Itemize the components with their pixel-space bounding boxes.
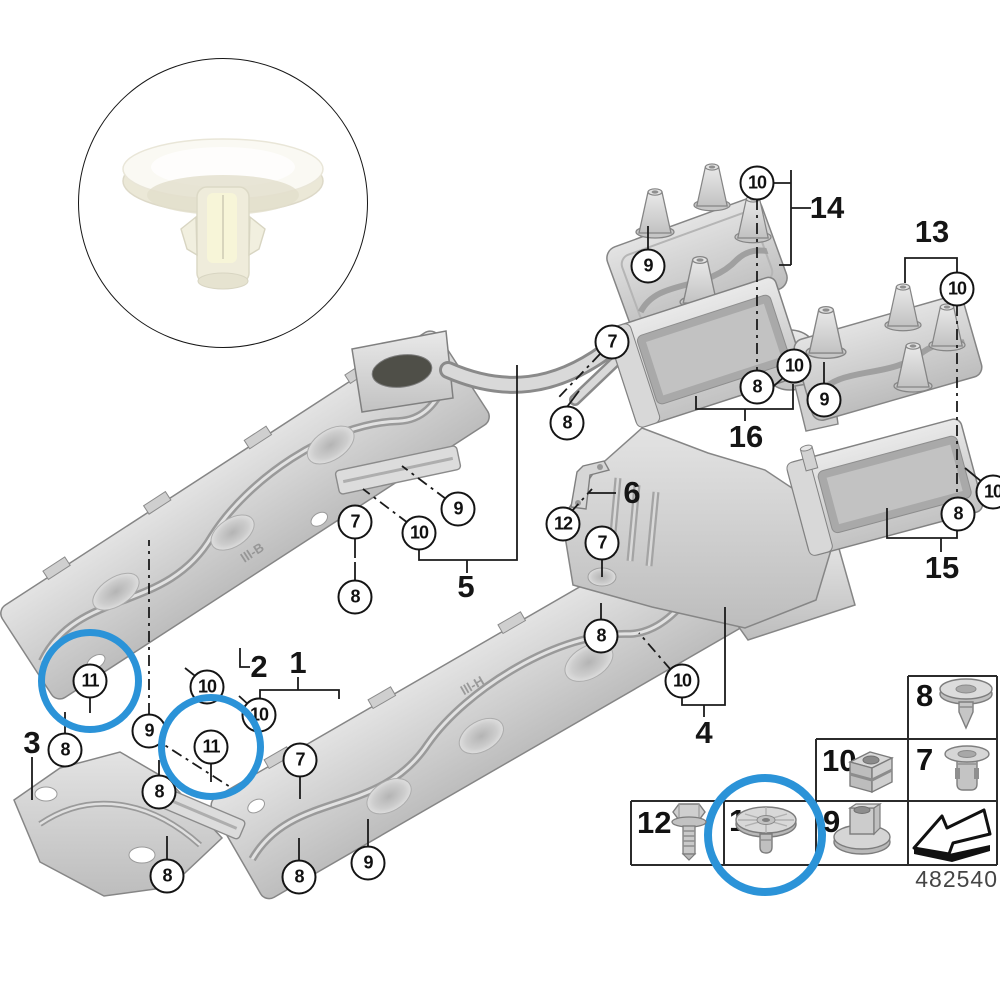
part-label-16: 16 <box>729 419 763 455</box>
highlight-ring <box>38 629 142 733</box>
callout-8: 8 <box>584 619 619 654</box>
part-label-13: 13 <box>915 214 949 250</box>
callout-8: 8 <box>48 733 83 768</box>
callout-10: 10 <box>777 349 812 384</box>
callout-10: 10 <box>976 475 1000 510</box>
callout-10: 10 <box>940 272 975 307</box>
callout-9: 9 <box>807 383 842 418</box>
callout-9: 9 <box>351 846 386 881</box>
legend-num-7: 7 <box>916 742 933 778</box>
part-label-5: 5 <box>457 569 474 605</box>
callout-8: 8 <box>550 406 585 441</box>
callout-7: 7 <box>595 325 630 360</box>
part-label-1: 1 <box>289 645 306 681</box>
cage-nut-icon <box>842 744 900 798</box>
callout-8: 8 <box>282 860 317 895</box>
expanding-rivet-icon <box>936 678 996 738</box>
parts-diagram-canvas: 1091071089810891012778810101091181187889… <box>0 0 1000 1000</box>
part-label-14: 14 <box>810 190 844 226</box>
legend-num-8: 8 <box>916 678 933 714</box>
callout-9: 9 <box>441 492 476 527</box>
hex-screw-icon <box>662 800 716 862</box>
callout-7: 7 <box>283 743 318 778</box>
callout-8: 8 <box>740 370 775 405</box>
part-label-3: 3 <box>23 725 40 761</box>
flange-nut-icon <box>828 800 896 860</box>
callout-8: 8 <box>338 580 373 615</box>
expansion-rivet-icon <box>938 742 996 800</box>
diagram-number: 482540 <box>900 866 998 893</box>
panel-marking: lll-H <box>458 673 487 698</box>
callout-12: 12 <box>546 507 581 542</box>
part-label-6: 6 <box>623 475 640 511</box>
callout-9: 9 <box>631 249 666 284</box>
callout-10: 10 <box>740 166 775 201</box>
highlight-ring <box>158 694 264 800</box>
push-rivet-icon <box>733 801 799 859</box>
callout-8: 8 <box>150 859 185 894</box>
callout-10: 10 <box>402 516 437 551</box>
part-label-4: 4 <box>695 715 712 751</box>
callout-8: 8 <box>941 497 976 532</box>
part-label-2: 2 <box>250 649 267 685</box>
panel-marking: lll-B <box>238 540 267 566</box>
continuation-arrow-icon <box>908 802 996 864</box>
callout-7: 7 <box>585 526 620 561</box>
callout-7: 7 <box>338 505 373 540</box>
callout-10: 10 <box>665 664 700 699</box>
part-label-15: 15 <box>925 550 959 586</box>
